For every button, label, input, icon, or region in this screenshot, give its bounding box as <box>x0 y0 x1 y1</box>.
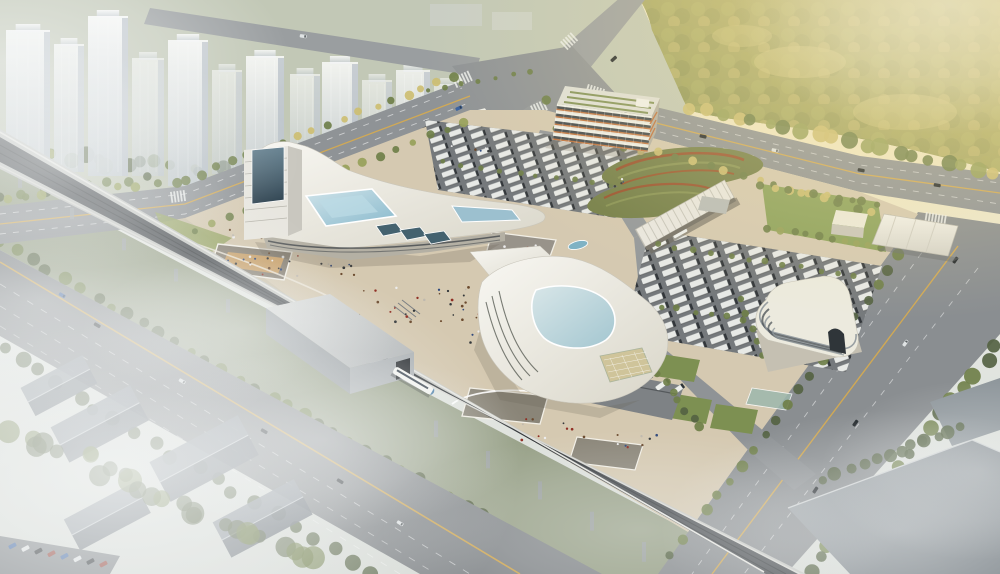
tree <box>771 416 781 426</box>
tree <box>740 317 747 324</box>
person <box>452 314 454 316</box>
person <box>471 334 473 336</box>
tree <box>673 396 680 403</box>
person <box>465 289 467 291</box>
tree <box>410 139 416 145</box>
person <box>463 294 465 296</box>
person <box>563 422 565 424</box>
tree <box>405 91 415 101</box>
tree <box>709 312 714 317</box>
rendering-canvas <box>0 0 1000 574</box>
tree <box>694 422 704 432</box>
tree <box>444 127 450 133</box>
tree <box>426 88 430 92</box>
person <box>467 286 470 289</box>
person <box>538 435 540 437</box>
tree <box>392 146 399 153</box>
tree <box>805 372 814 381</box>
tree <box>387 97 394 104</box>
tree <box>680 407 688 415</box>
person <box>462 148 464 150</box>
tree <box>670 389 678 397</box>
tree <box>417 85 424 92</box>
tree <box>723 313 730 320</box>
tree <box>308 127 315 134</box>
car-glass <box>304 35 306 38</box>
tree <box>793 384 803 394</box>
person <box>477 330 479 332</box>
fog-bank <box>80 260 400 400</box>
architectural-rendering <box>0 0 1000 574</box>
tree <box>693 310 698 315</box>
tree <box>691 415 699 423</box>
person <box>571 428 574 431</box>
person <box>476 317 478 319</box>
person <box>423 299 426 302</box>
person <box>451 145 453 147</box>
tree <box>458 163 463 168</box>
tree <box>987 339 1000 352</box>
person <box>416 297 418 299</box>
person <box>469 341 472 344</box>
person <box>438 289 440 291</box>
person <box>447 290 449 292</box>
tree <box>741 310 749 318</box>
tree <box>324 121 332 129</box>
person <box>440 320 442 322</box>
tree <box>341 116 348 123</box>
person <box>451 299 454 302</box>
tree <box>358 158 367 167</box>
person <box>461 318 464 321</box>
person <box>464 301 466 303</box>
tree <box>659 305 664 310</box>
tree <box>441 159 446 164</box>
tree <box>673 304 680 311</box>
person <box>439 293 441 295</box>
tree <box>354 108 362 116</box>
person <box>462 309 464 311</box>
person <box>449 303 452 306</box>
person <box>525 418 527 420</box>
tree <box>783 400 793 410</box>
person <box>566 428 568 430</box>
tree <box>750 325 757 332</box>
tree <box>663 378 671 386</box>
tree <box>426 130 434 138</box>
person <box>503 245 506 248</box>
person <box>395 287 397 289</box>
person <box>531 418 533 420</box>
tree <box>375 104 381 110</box>
person <box>461 305 464 308</box>
tree <box>376 152 385 161</box>
tree <box>982 353 997 368</box>
